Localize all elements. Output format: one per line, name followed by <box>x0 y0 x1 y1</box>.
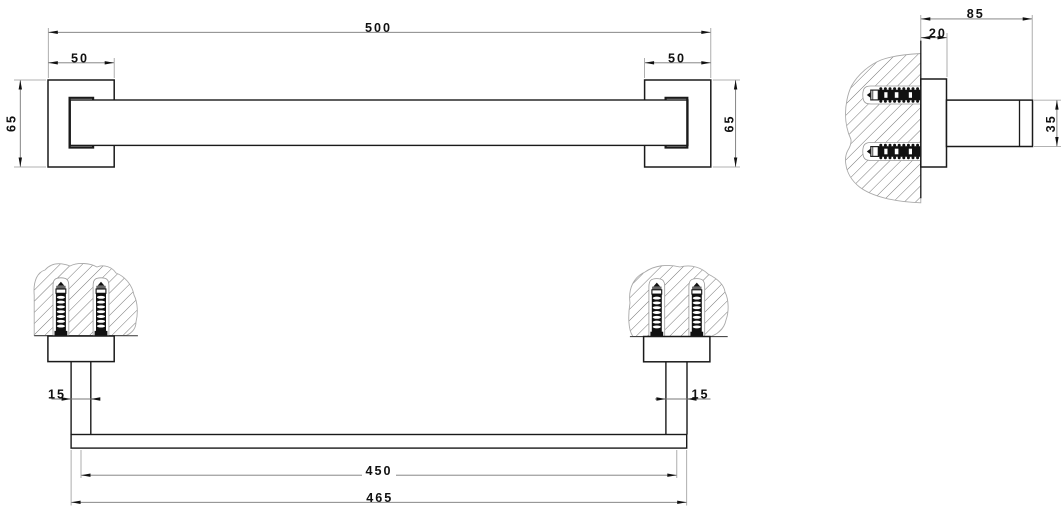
svg-text:450: 450 <box>365 464 392 478</box>
svg-text:465: 465 <box>366 491 393 505</box>
svg-text:50: 50 <box>668 51 686 65</box>
svg-text:500: 500 <box>365 21 392 35</box>
svg-text:20: 20 <box>929 26 947 40</box>
svg-text:15: 15 <box>691 388 709 402</box>
svg-text:15: 15 <box>48 388 66 402</box>
svg-text:65: 65 <box>722 114 736 132</box>
svg-text:50: 50 <box>71 51 89 65</box>
svg-text:85: 85 <box>967 7 985 21</box>
svg-text:35: 35 <box>1044 114 1058 132</box>
svg-text:65: 65 <box>5 114 19 132</box>
